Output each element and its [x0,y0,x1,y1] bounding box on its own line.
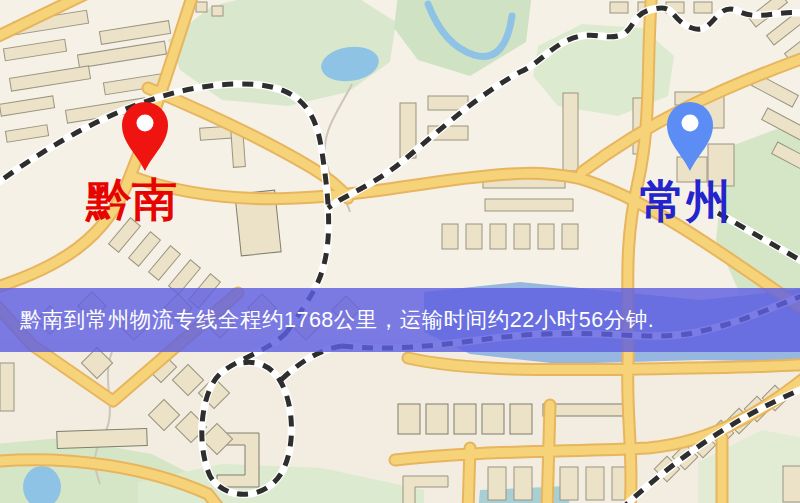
route-info-banner: 黔南到常州物流专线全程约1768公里，运输时间约22小时56分钟. [0,288,800,352]
destination-label: 常州 [640,179,732,224]
route-info-text: 黔南到常州物流专线全程约1768公里，运输时间约22小时56分钟. [0,288,800,352]
map-screenshot: 黔南 常州 黔南到常州物流专线全程约1768公里，运输时间约22小时56分钟. [0,0,800,503]
map-image [0,0,800,503]
destination-pin-hole [682,115,699,132]
origin-pin-hole [137,115,154,132]
origin-label: 黔南 [86,177,178,222]
